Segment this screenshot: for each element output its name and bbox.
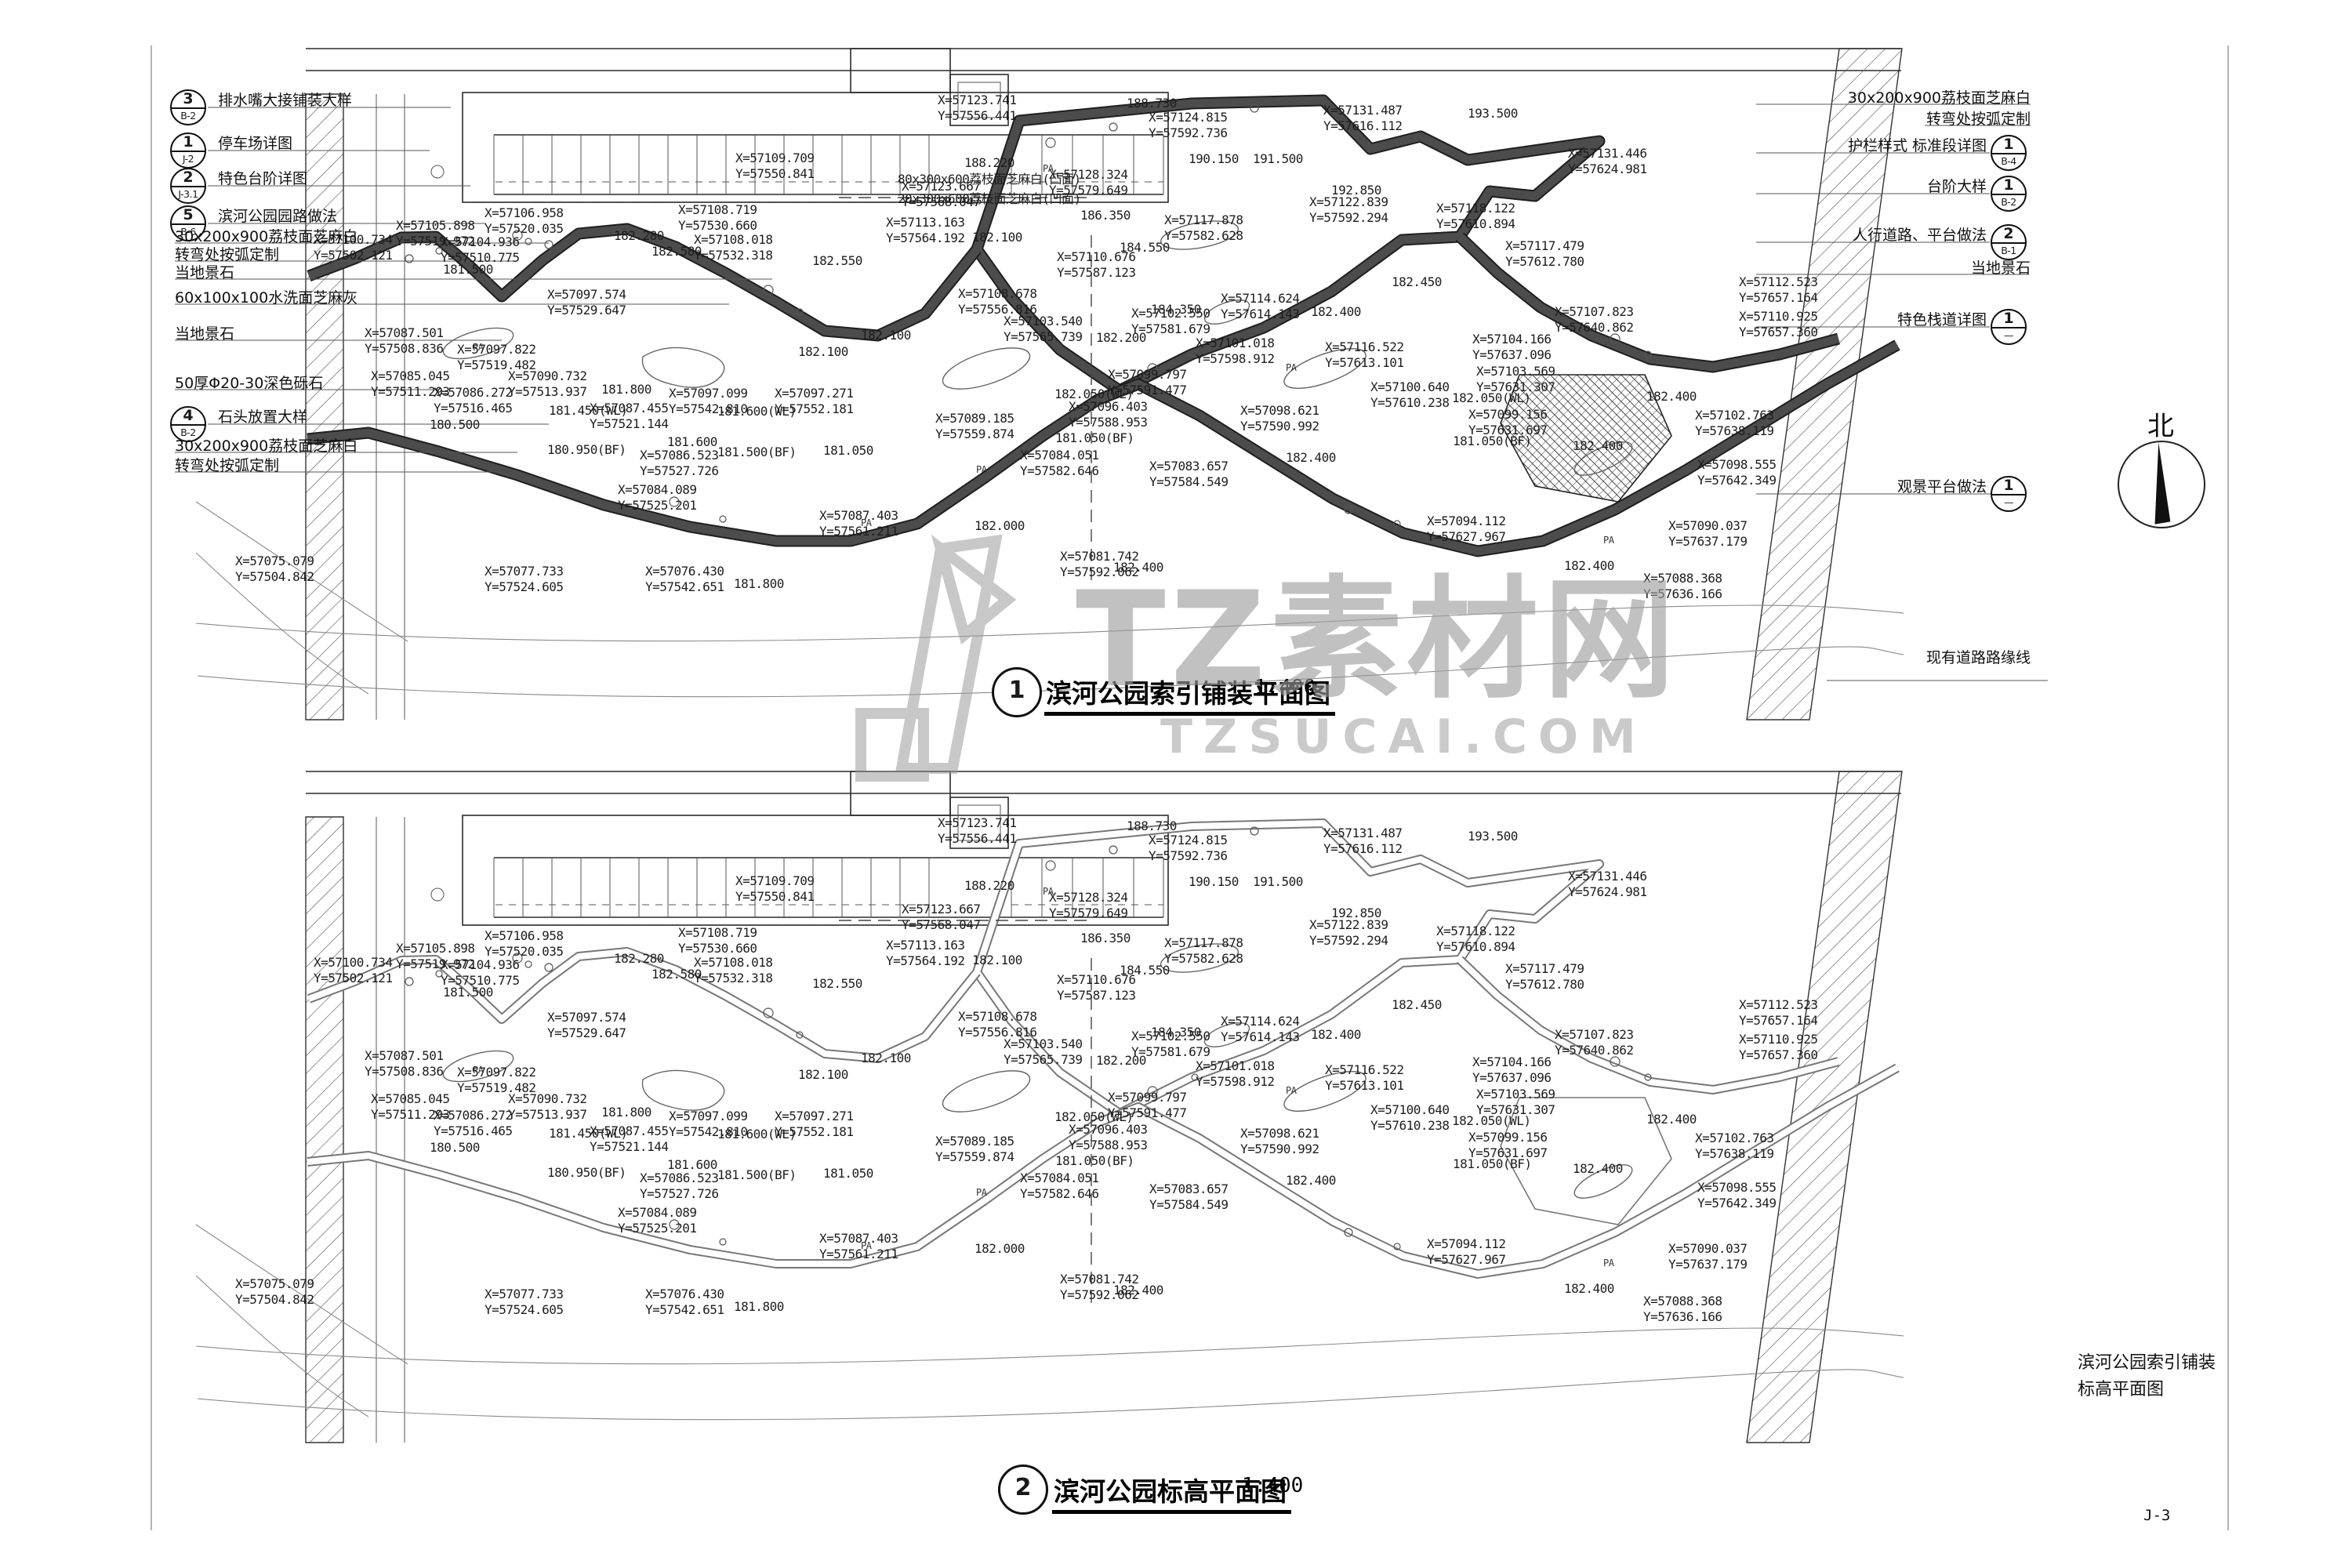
detail-number: 3 — [172, 91, 205, 109]
coordinate-label: X=57109.709 Y=57550.841 — [735, 151, 814, 183]
coordinate-label: X=57104.166 Y=57637.096 — [1472, 332, 1551, 364]
coordinate-label: 182.100 — [861, 328, 911, 343]
detail-sheet-ref: J-3.1 — [172, 187, 205, 201]
coordinate-label: 182.100 — [798, 344, 848, 360]
coordinate-label: X=57131.487 Y=57616.112 — [1323, 103, 1402, 135]
coordinate-label: 181.500 — [443, 985, 493, 1000]
right-margin-label: 护栏样式 标准段详图 — [1848, 134, 1987, 155]
detail-bubble: 1— — [1991, 476, 2027, 512]
coordinate-label: 182.400 — [1573, 1161, 1623, 1177]
coordinate-label: X=57117.878 Y=57582.628 — [1164, 212, 1243, 245]
detail-bubble: 1B-2 — [1991, 176, 2027, 212]
coordinate-label: X=57103.540 Y=57565.739 — [1004, 1036, 1082, 1069]
coordinate-label: X=57087.403 Y=57561.211 — [819, 1231, 898, 1263]
detail-number: 5 — [172, 207, 205, 225]
detail-number: 1 — [1992, 477, 2025, 495]
detail-sheet-ref: J-2 — [172, 152, 205, 165]
coordinate-label: 190.150 — [1189, 874, 1239, 890]
coordinate-label: X=57089.185 Y=57559.874 — [935, 411, 1014, 443]
coordinate-label: X=57098.621 Y=57590.992 — [1240, 403, 1319, 435]
coordinate-label: 182.200 — [1096, 1053, 1146, 1069]
coordinate-label: X=57084.089 Y=57525.201 — [618, 482, 696, 514]
coordinate-label: X=57116.522 Y=57613.101 — [1325, 1062, 1403, 1094]
plan-title-number: 2 — [998, 1465, 1048, 1515]
detail-sheet-ref: — — [1992, 495, 2025, 509]
coordinate-label: X=57117.878 Y=57582.628 — [1164, 935, 1243, 967]
right-margin-note: 转弯处按弧定制 — [1926, 107, 2031, 129]
coordinate-label: X=57100.640 Y=57610.238 — [1370, 379, 1449, 412]
coordinate-label: 182.280 — [614, 228, 664, 244]
coordinate-label: 182.580 — [652, 967, 702, 982]
coordinate-label: 180.950(BF) — [547, 1165, 626, 1181]
left-margin-note: 30x200x900荔枝面芝麻白 — [175, 434, 358, 456]
coordinate-label: X=57103.569 Y=57631.307 — [1476, 1087, 1555, 1119]
coordinate-label: 182.400 — [1564, 558, 1614, 574]
sheet-side-title-line1: 滨河公园索引铺装 — [2078, 1350, 2216, 1377]
coordinate-label: 181.050 — [823, 443, 873, 459]
detail-bubble: 2J-3.1 — [170, 168, 206, 204]
coordinate-label: X=57084.089 Y=57525.201 — [618, 1205, 696, 1237]
left-margin-note: 当地景石 — [175, 322, 234, 343]
coordinate-label: X=57101.018 Y=57598.912 — [1196, 1058, 1274, 1091]
detail-sheet-ref: B-2 — [172, 109, 205, 122]
left-margin-note: 转弯处按弧定制 — [175, 454, 279, 475]
detail-number: 1 — [1992, 177, 2025, 195]
coordinate-label: X=57096.403 Y=57588.953 — [1069, 1122, 1147, 1154]
coordinate-label: 182.000 — [975, 518, 1025, 534]
coordinate-label: X=57089.185 Y=57559.874 — [935, 1134, 1014, 1166]
coordinate-label: X=57117.479 Y=57612.780 — [1505, 961, 1584, 993]
coordinate-label: 182.100 — [972, 953, 1022, 968]
detail-sheet-ref: B-4 — [1992, 154, 2025, 168]
coordinate-label: 186.350 — [1080, 931, 1131, 946]
coordinate-label: X=57090.037 Y=57637.179 — [1668, 1241, 1747, 1273]
coordinate-label: 193.500 — [1468, 106, 1518, 122]
coordinate-label: X=57101.018 Y=57598.912 — [1196, 336, 1274, 368]
coordinate-label: 181.800 — [601, 1105, 652, 1120]
coordinate-label: 182.100 — [798, 1067, 848, 1083]
left-margin-note: 当地景石 — [175, 261, 234, 282]
coordinate-label: X=57113.163 Y=57564.192 — [886, 938, 964, 970]
coordinate-label: 182.400 — [1573, 438, 1623, 454]
pa-marker: PA — [1286, 362, 1296, 374]
coordinate-label: X=57106.958 Y=57520.035 — [485, 928, 563, 960]
coordinate-label: 182.280 — [614, 951, 664, 967]
pa-marker: PA — [473, 342, 483, 354]
coordinate-label: X=57110.676 Y=57587.123 — [1057, 972, 1135, 1004]
pa-marker: PA — [976, 1187, 986, 1199]
coordinate-label: 182.450 — [1392, 997, 1442, 1013]
coordinate-label: X=57086.523 Y=57527.726 — [640, 448, 718, 480]
coordinate-label: X=57124.815 Y=57592.736 — [1149, 833, 1227, 865]
coordinate-label: X=57075.079 Y=57504.842 — [235, 554, 314, 586]
coordinate-label: 181.800 — [734, 576, 784, 592]
detail-sheet-ref: B-2 — [1992, 195, 2025, 209]
coordinate-label: 182.400 — [1286, 1173, 1336, 1189]
coordinate-label: 182.580 — [652, 244, 702, 260]
coordinate-label: 181.050(BF) — [1055, 1153, 1134, 1169]
coordinate-label: X=57083.657 Y=57584.549 — [1149, 1181, 1228, 1214]
coordinate-label: 180.500 — [430, 1140, 480, 1156]
coordinate-label: X=57084.051 Y=57582.646 — [1020, 1171, 1098, 1203]
coordinate-label: X=57109.709 Y=57550.841 — [735, 873, 814, 906]
coordinate-label: X=57103.569 Y=57631.307 — [1476, 364, 1555, 396]
pa-marker: PA — [1603, 535, 1613, 546]
coordinate-label: X=57108.719 Y=57530.660 — [678, 925, 757, 957]
left-margin-label: 排水嘴大接铺装大样 — [218, 89, 352, 110]
coordinate-label: X=57100.640 Y=57610.238 — [1370, 1102, 1449, 1134]
sheet-side-title-line2: 标高平面图 — [2078, 1377, 2216, 1403]
coordinate-label: X=57123.667 Y=57568.047 — [902, 902, 980, 934]
coordinate-label: 182.400 — [1113, 560, 1163, 575]
right-margin-note: 现有道路路缘线 — [1926, 646, 2031, 667]
coordinate-label: 191.500 — [1253, 151, 1303, 167]
detail-number: 2 — [172, 169, 205, 187]
coordinate-label: X=57110.676 Y=57587.123 — [1057, 249, 1135, 281]
north-arrow: 北 — [2116, 439, 2207, 530]
detail-number: 1 — [1992, 310, 2025, 328]
sheet-side-title: 滨河公园索引铺装 标高平面图 — [2078, 1350, 2216, 1403]
right-margin-label: 人行道路、平台做法 — [1853, 223, 1987, 245]
coordinate-label: X=57090.732 Y=57513.937 — [508, 1091, 586, 1123]
coordinate-label: X=57077.733 Y=57524.605 — [485, 1287, 563, 1319]
coordinate-label: X=57128.324 Y=57579.649 — [1049, 890, 1127, 922]
coordinate-label: X=57076.430 Y=57542.651 — [645, 1287, 724, 1319]
pa-marker: PA — [976, 464, 986, 476]
detail-bubble: 3B-2 — [170, 89, 206, 125]
coordinate-label: X=57103.540 Y=57565.739 — [1004, 314, 1082, 346]
coordinate-label: 182.000 — [975, 1241, 1025, 1257]
left-margin-note: 50厚Φ20-30深色砾石 — [175, 372, 323, 393]
coordinate-label: X=57131.446 Y=57624.981 — [1568, 869, 1646, 901]
coordinate-label: X=57086.272 Y=57516.465 — [434, 1108, 512, 1140]
coordinate-label: X=57077.733 Y=57524.605 — [485, 564, 563, 596]
left-margin-note: 60x100x100水洗面芝麻灰 — [175, 286, 358, 307]
coordinate-label: 186.350 — [1080, 208, 1131, 223]
coordinate-label: X=57096.403 Y=57588.953 — [1069, 399, 1147, 431]
coordinate-label: X=57110.925 Y=57657.360 — [1739, 1032, 1817, 1064]
coordinate-label: 180.500 — [430, 417, 480, 433]
coordinate-label: X=57107.823 Y=57640.862 — [1555, 304, 1633, 336]
coordinate-label: X=57097.574 Y=57529.647 — [547, 287, 626, 319]
detail-bubble: 1J-2 — [170, 132, 206, 169]
coordinate-label: X=57087.455 Y=57521.144 — [590, 1123, 668, 1156]
coordinate-label: X=57102.763 Y=57638.119 — [1695, 408, 1773, 440]
right-margin-label: 特色栈道详图 — [1897, 308, 1987, 329]
right-margin-note: 30x200x900荔枝面芝麻白 — [1848, 86, 2031, 107]
coordinate-label: 181.800 — [601, 382, 652, 397]
coordinate-label: X=57097.271 Y=57552.181 — [775, 1109, 853, 1141]
pa-marker: PA — [1603, 1258, 1613, 1269]
sheet-page-number: J-3 — [2143, 1507, 2170, 1524]
coordinate-label: 182.450 — [1392, 274, 1442, 290]
coordinate-label: X=57088.368 Y=57636.166 — [1643, 1294, 1722, 1326]
coordinate-label: X=57090.037 Y=57637.179 — [1668, 518, 1747, 550]
coordinate-label: X=57100.734 Y=57502.121 — [314, 955, 392, 987]
coordinate-label: X=57104.166 Y=57637.096 — [1472, 1054, 1551, 1087]
coordinate-label: X=57131.487 Y=57616.112 — [1323, 826, 1402, 858]
coordinate-label: X=57108.018 Y=57532.318 — [694, 232, 772, 264]
coordinate-label: X=57108.719 Y=57530.660 — [678, 202, 757, 234]
pa-marker: PA — [861, 1240, 871, 1252]
coordinate-label: 181.500(BF) — [717, 1167, 796, 1183]
coordinate-label: X=57113.163 Y=57564.192 — [886, 215, 964, 247]
detail-number: 1 — [1992, 136, 2025, 154]
coordinate-label: X=57099.156 Y=57631.697 — [1468, 1130, 1547, 1162]
coordinate-label: X=57124.815 Y=57592.736 — [1149, 110, 1227, 142]
coordinate-label: X=57083.657 Y=57584.549 — [1149, 459, 1228, 491]
coordinate-label: X=57123.667 Y=57568.047 — [902, 179, 980, 211]
coordinate-label: 181.500(BF) — [717, 445, 796, 460]
coordinate-label: 181.050 — [823, 1166, 873, 1181]
coordinate-label: X=57084.051 Y=57582.646 — [1020, 448, 1098, 480]
detail-bubble: 1— — [1991, 309, 2027, 345]
coordinate-label: 182.100 — [972, 230, 1022, 245]
coordinate-label: 182.400 — [1646, 1112, 1697, 1127]
pa-marker: PA — [1043, 886, 1053, 898]
coordinate-label: 188.220 — [964, 878, 1014, 894]
detail-bubble: 1B-4 — [1991, 135, 2027, 171]
coordinate-label: X=57087.403 Y=57561.211 — [819, 508, 898, 540]
coordinate-label: 182.400 — [1113, 1283, 1163, 1298]
coordinate-label: X=57112.523 Y=57657.164 — [1739, 274, 1817, 307]
coordinate-label: X=57094.112 Y=57627.967 — [1427, 1236, 1505, 1269]
coordinate-label: 181.050(BF) — [1055, 430, 1134, 446]
right-margin-label: 观景平台做法 — [1897, 475, 1987, 496]
coordinate-label: 190.150 — [1189, 151, 1239, 167]
coordinate-label: X=57122.839 Y=57592.294 — [1309, 917, 1388, 949]
plan-title-number: 1 — [992, 667, 1042, 717]
coordinate-label: X=57099.156 Y=57631.697 — [1468, 407, 1547, 439]
coordinate-label: X=57098.555 Y=57642.349 — [1697, 1180, 1776, 1212]
coordinate-label: 181.800 — [734, 1299, 784, 1315]
left-margin-label: 停车场详图 — [218, 132, 292, 153]
coordinate-label: 182.550 — [812, 976, 862, 992]
coordinate-label: X=57118.122 Y=57610.894 — [1436, 924, 1515, 956]
pa-marker: PA — [1043, 163, 1053, 175]
coordinate-label: X=57110.925 Y=57657.360 — [1739, 309, 1817, 341]
coordinate-label: X=57086.272 Y=57516.465 — [434, 385, 512, 417]
coordinate-label: 182.550 — [812, 253, 862, 269]
detail-bubble: 2B-1 — [1991, 224, 2027, 260]
coordinate-label: X=57087.455 Y=57521.144 — [590, 401, 668, 433]
pa-marker: PA — [861, 517, 871, 529]
coordinate-label: X=57097.271 Y=57552.181 — [775, 386, 853, 418]
coordinate-label: 193.500 — [1468, 829, 1518, 844]
coordinate-label: X=57086.523 Y=57527.726 — [640, 1171, 718, 1203]
coordinate-label: X=57102.763 Y=57638.119 — [1695, 1131, 1773, 1163]
coordinate-label: X=57088.368 Y=57636.166 — [1643, 571, 1722, 603]
detail-sheet-ref: — — [1992, 328, 2025, 342]
coordinate-label: 182.400 — [1311, 1027, 1361, 1043]
coordinate-label: X=57112.523 Y=57657.164 — [1739, 997, 1817, 1029]
coordinate-label: 182.400 — [1311, 304, 1361, 320]
coordinate-label: X=57075.079 Y=57504.842 — [235, 1276, 314, 1308]
coordinate-label: X=57123.741 Y=57556.441 — [938, 815, 1016, 848]
north-arrow-icon — [2116, 439, 2207, 530]
coordinate-label: X=57114.624 Y=57614.143 — [1221, 291, 1299, 323]
coordinate-label: 182.200 — [1096, 330, 1146, 346]
coordinate-label: X=57076.430 Y=57542.651 — [645, 564, 724, 596]
coordinate-label: 182.100 — [861, 1051, 911, 1066]
right-margin-label: 台阶大样 — [1927, 175, 1987, 196]
coordinate-label: X=57087.501 Y=57508.836 — [365, 325, 443, 358]
coordinate-label: X=57123.741 Y=57556.441 — [938, 93, 1016, 125]
detail-number: 2 — [1992, 226, 2025, 244]
plan-geometry-elevation — [196, 771, 1904, 1443]
left-margin-label: 滨河公园园路做法 — [218, 205, 337, 226]
detail-number: 4 — [172, 408, 205, 426]
coordinate-label: 188.220 — [964, 155, 1014, 171]
coordinate-label: X=57108.018 Y=57532.318 — [694, 955, 772, 987]
coordinate-label: X=57131.446 Y=57624.981 — [1568, 146, 1646, 178]
left-margin-label: 特色台阶详图 — [218, 167, 307, 188]
coordinate-label: X=57117.479 Y=57612.780 — [1505, 238, 1584, 270]
coordinate-label: X=57098.555 Y=57642.349 — [1697, 457, 1776, 489]
coordinate-label: 182.400 — [1564, 1281, 1614, 1297]
coordinate-label: 181.500 — [443, 262, 493, 278]
coordinate-label: X=57106.958 Y=57520.035 — [485, 205, 563, 238]
coordinate-label: 191.500 — [1253, 874, 1303, 890]
coordinate-label: X=57107.823 Y=57640.862 — [1555, 1027, 1633, 1059]
coordinate-label: X=57122.839 Y=57592.294 — [1309, 194, 1388, 227]
coordinate-label: 180.950(BF) — [547, 442, 626, 458]
right-margin-note: 当地景石 — [1971, 256, 2031, 278]
coordinate-label: X=57094.112 Y=57627.967 — [1427, 514, 1505, 546]
coordinate-label: X=57087.501 Y=57508.836 — [365, 1048, 443, 1080]
coordinate-label: X=57114.624 Y=57614.143 — [1221, 1014, 1299, 1046]
coordinate-label: X=57097.574 Y=57529.647 — [547, 1010, 626, 1042]
coordinate-label: X=57090.732 Y=57513.937 — [508, 368, 586, 401]
coordinate-label: 182.400 — [1646, 389, 1697, 405]
detail-number: 1 — [172, 134, 205, 152]
left-margin-label: 石头放置大样 — [218, 405, 307, 426]
plan-title-scale: 1:400 — [1242, 1474, 1303, 1497]
coordinate-label: X=57116.522 Y=57613.101 — [1325, 339, 1403, 372]
plan-title-scale: 1:400 — [1254, 676, 1316, 699]
north-label: 北 — [2147, 405, 2174, 443]
detail-sheet-ref: B-1 — [1992, 244, 2025, 257]
pa-marker: PA — [473, 1065, 483, 1076]
pa-marker: PA — [1286, 1085, 1296, 1097]
coordinate-label: X=57098.621 Y=57590.992 — [1240, 1126, 1319, 1158]
coordinate-label: X=57118.122 Y=57610.894 — [1436, 201, 1515, 233]
cad-sheet: { "sheet": { "page_number": "J-3", "side… — [0, 0, 2352, 1568]
coordinate-label: 182.400 — [1286, 450, 1336, 466]
